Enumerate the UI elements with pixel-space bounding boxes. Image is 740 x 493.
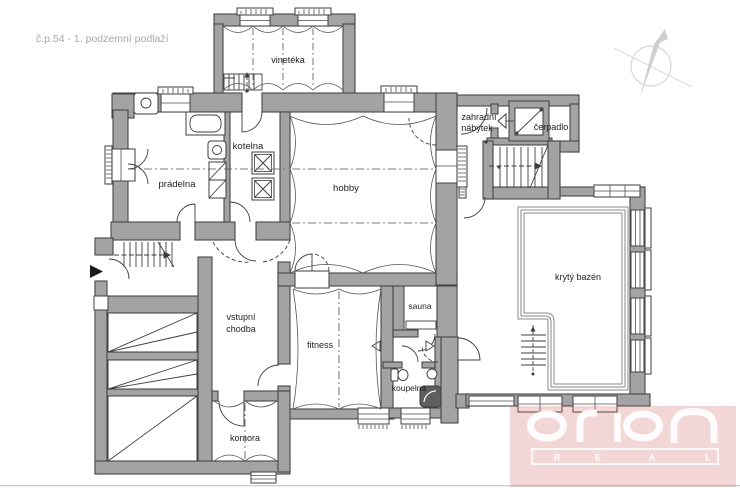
svg-text:fitness: fitness xyxy=(307,340,334,350)
svg-text:chodba: chodba xyxy=(226,324,256,334)
svg-text:nábytek: nábytek xyxy=(461,123,493,133)
svg-text:zahradní: zahradní xyxy=(461,112,497,122)
svg-text:komora: komora xyxy=(230,433,260,443)
svg-text:sauna: sauna xyxy=(408,301,431,311)
svg-text:prádelna: prádelna xyxy=(159,179,197,190)
svg-text:E: E xyxy=(595,453,601,463)
svg-text:krytý bazén: krytý bazén xyxy=(555,272,601,282)
svg-text:R: R xyxy=(554,453,561,463)
svg-text:vstupní: vstupní xyxy=(226,312,256,322)
svg-text:č.p.54 - 1. podzemní podlaží: č.p.54 - 1. podzemní podlaží xyxy=(36,33,169,45)
svg-text:A: A xyxy=(649,453,656,463)
svg-text:čerpadlo: čerpadlo xyxy=(534,122,569,132)
svg-text:vinetéka: vinetéka xyxy=(271,55,305,65)
svg-text:kotelna: kotelna xyxy=(233,141,264,152)
svg-text:hobby: hobby xyxy=(333,183,359,194)
svg-text:L: L xyxy=(705,453,711,463)
svg-text:koupelna: koupelna xyxy=(392,383,427,393)
